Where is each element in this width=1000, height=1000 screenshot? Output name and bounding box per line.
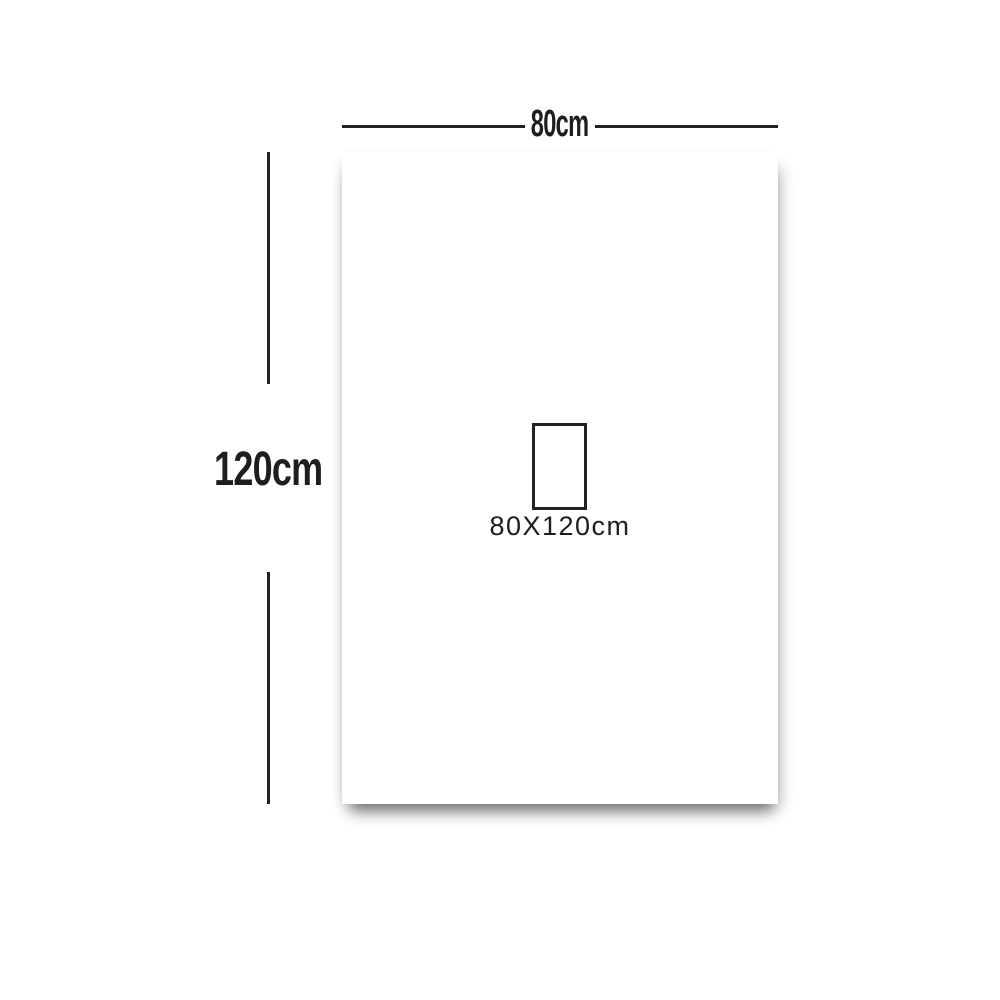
height-dimension-label: 120cm <box>214 446 322 494</box>
width-dimension-label: 80cm <box>531 105 589 147</box>
width-dimension-line-right <box>595 125 778 128</box>
product-panel: 80X120cm <box>342 152 778 804</box>
diagram-canvas: 80cm 120cm 80X120cm <box>0 0 1000 1000</box>
width-dimension-line-left <box>342 125 525 128</box>
width-dimension: 80cm <box>342 104 778 148</box>
height-dimension-line-bottom <box>267 572 270 804</box>
size-swatch-rect <box>532 423 587 510</box>
height-dimension-line-top <box>267 152 270 384</box>
height-dimension: 120cm <box>212 152 324 804</box>
size-swatch-label: 80X120cm <box>342 513 778 540</box>
